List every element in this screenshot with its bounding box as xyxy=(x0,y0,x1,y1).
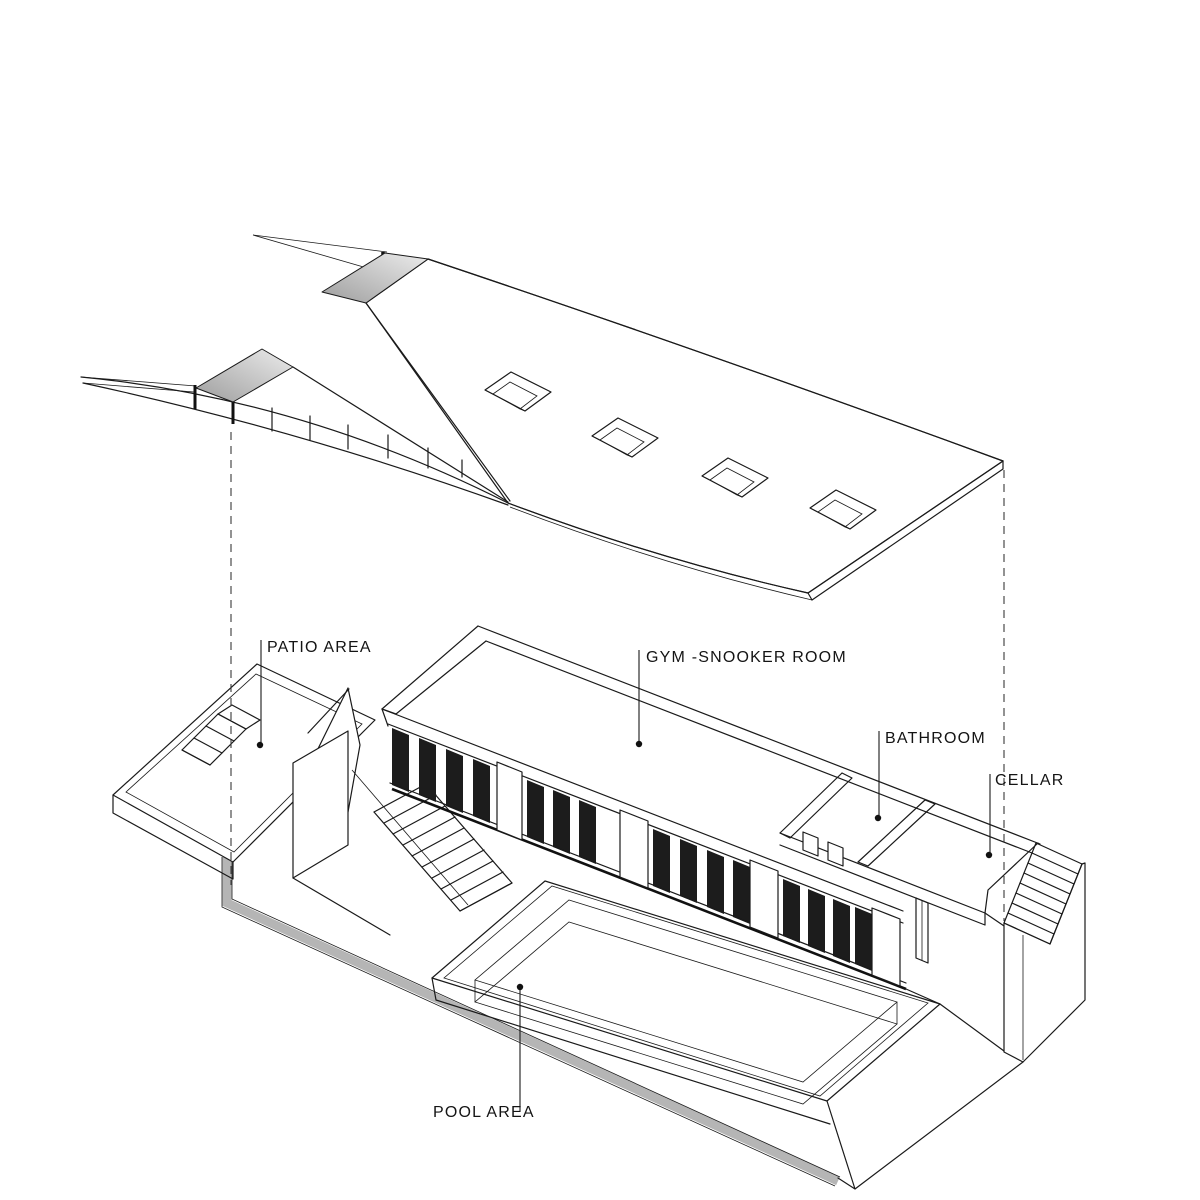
label-pool-text: POOL AREA xyxy=(433,1104,535,1121)
glazing-pillar-4 xyxy=(872,908,900,986)
gym-interior-column xyxy=(916,898,928,963)
diagram-svg: PATIO AREA GYM -SNOOKER ROOM BATHROOM CE… xyxy=(0,0,1200,1200)
label-cellar-text: CELLAR xyxy=(995,772,1064,789)
label-gym: GYM -SNOOKER ROOM xyxy=(636,649,847,747)
label-patio-text: PATIO AREA xyxy=(267,639,372,656)
label-gym-text: GYM -SNOOKER ROOM xyxy=(646,649,847,666)
basement-level xyxy=(113,626,1085,1189)
label-cellar: CELLAR xyxy=(986,772,1065,858)
glazing-pillar-2 xyxy=(620,810,648,888)
glazing-pillar-3 xyxy=(750,860,778,938)
architectural-diagram: PATIO AREA GYM -SNOOKER ROOM BATHROOM CE… xyxy=(0,0,1200,1200)
roof-plane xyxy=(81,235,1003,600)
glazing-pillar-1 xyxy=(497,762,522,840)
label-bathroom-text: BATHROOM xyxy=(885,730,986,747)
wing-panel-left xyxy=(196,349,293,402)
